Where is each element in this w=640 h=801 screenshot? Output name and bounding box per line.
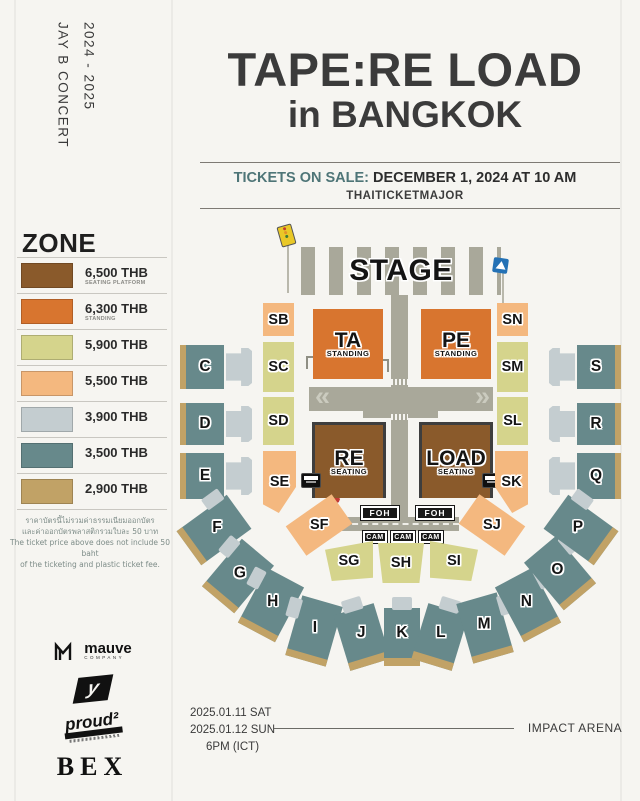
zone-re: RE SEATING xyxy=(312,422,386,498)
cross-aisle: « » xyxy=(309,387,493,411)
zone-s-inner xyxy=(549,348,575,386)
legend-row: 2,900 THB xyxy=(17,474,167,510)
legend-price: 3,900 THB xyxy=(85,409,148,424)
stage: STAGE xyxy=(301,247,501,295)
cam-box: CAM xyxy=(391,531,415,543)
zone-pe: PE STANDING xyxy=(421,309,491,379)
zone-ta: TA STANDING xyxy=(313,309,383,379)
zone-sl: SL xyxy=(497,397,528,445)
foh-box: FOH xyxy=(416,506,454,520)
mauve-logo-text: mauve xyxy=(84,642,132,655)
disclaimer-line: และค่าออกบัตรพลาสติกรวมใบละ 50 บาท xyxy=(10,526,170,537)
legend-swatch xyxy=(21,443,73,468)
sponsor-logos: mauve COMPANY y proud² BEX xyxy=(20,640,165,782)
poster-title-city: in BANGKOK xyxy=(185,94,625,136)
proud-logo: proud² xyxy=(19,705,166,748)
legend-swatch xyxy=(21,479,73,504)
zone-sk: SK xyxy=(495,451,528,513)
ticket-vendor: THAITICKETMAJOR xyxy=(185,190,625,202)
zone-se: SE xyxy=(263,451,296,513)
side-artist: JAY B CONCERT xyxy=(50,22,76,148)
legend-row: 6,300 THB STANDING xyxy=(17,294,167,330)
left-arrow-icon: « xyxy=(315,381,327,412)
road-dashes xyxy=(342,523,459,525)
legend-row: 3,500 THB xyxy=(17,438,167,474)
zone-j-inner xyxy=(341,596,364,614)
traffic-light-green xyxy=(285,235,289,239)
zone-q-inner xyxy=(549,457,575,495)
zone-d: D xyxy=(180,403,224,445)
legend-swatch xyxy=(21,335,73,360)
poster: 2024 - 2025 JAY B CONCERT TAPE:RE LOAD i… xyxy=(0,0,640,801)
price-disclaimer: ราคาบัตรนี้ไม่รวมค่าธรรมเนียมออกบัตร และ… xyxy=(10,515,170,570)
legend-row: 5,900 THB xyxy=(17,330,167,366)
zone-r-inner xyxy=(549,406,575,442)
zone-sb: SB xyxy=(263,303,294,336)
legend-price: 2,900 THB xyxy=(85,481,148,496)
zone-load-label: LOAD xyxy=(426,448,486,469)
zone-i: I xyxy=(285,595,342,666)
zone-c: C xyxy=(180,345,224,389)
zone-d-inner xyxy=(226,406,252,442)
zone-load-sub: SEATING xyxy=(438,467,474,476)
zone-s: S xyxy=(577,345,621,389)
platform-marker-icon xyxy=(301,473,321,488)
zone-ta-sub: STANDING xyxy=(327,349,370,358)
zone-legend: 6,500 THB SEATING PLATFORM 6,300 THB STA… xyxy=(17,257,167,510)
disclaimer-line: of the ticketing and plastic ticket fee. xyxy=(10,559,170,570)
zone-sd: SD xyxy=(263,397,294,445)
cam-box: CAM xyxy=(363,531,387,543)
zone-sc: SC xyxy=(263,342,294,392)
legend-swatch xyxy=(21,371,73,396)
legend-swatch xyxy=(21,263,73,288)
divider xyxy=(200,208,620,209)
mauve-logo-icon xyxy=(53,640,79,662)
foh-label: FOH xyxy=(370,508,391,518)
zone-sf: SF xyxy=(286,494,353,556)
zone-e-inner xyxy=(226,457,252,495)
zone-r: R xyxy=(577,403,621,445)
zone-si: SI xyxy=(430,541,478,581)
zone-sg: SG xyxy=(325,541,373,581)
zone-j: J xyxy=(333,603,390,671)
paper-crease xyxy=(171,0,173,801)
right-arrow-icon: » xyxy=(475,381,487,412)
cam-label: CAM xyxy=(422,534,439,541)
zebra-crossing-icon xyxy=(391,414,408,420)
zebra-crossing-icon xyxy=(391,379,408,385)
cam-label: CAM xyxy=(366,534,383,541)
legend-heading: ZONE xyxy=(22,228,96,259)
event-dates: 2025.01.11 SAT 2025.01.12 SUN 6PM (ICT) xyxy=(190,705,275,756)
sale-datetime: DECEMBER 1, 2024 AT 10 AM xyxy=(373,170,576,186)
seating-map: « » STAGE TA STANDING xyxy=(175,225,635,665)
paper-crease xyxy=(14,0,16,801)
bex-logo: BEX xyxy=(20,752,165,782)
foh-box: FOH xyxy=(361,506,399,520)
footer-line xyxy=(274,728,514,729)
zone-re-sub: SEATING xyxy=(331,467,367,476)
disclaimer-line: The ticket price above does not include … xyxy=(10,537,170,559)
divider xyxy=(200,162,620,163)
zone-ta-label: TA xyxy=(335,330,361,351)
legend-note: SEATING PLATFORM xyxy=(85,280,146,286)
legend-price: 3,500 THB xyxy=(85,445,148,460)
legend-row: 5,500 THB xyxy=(17,366,167,402)
sale-line: TICKETS ON SALE: DECEMBER 1, 2024 AT 10 … xyxy=(185,170,625,186)
pedestrian-crossing-sign-icon xyxy=(492,257,509,274)
zone-sn: SN xyxy=(497,303,528,336)
venue-name: IMPACT ARENA xyxy=(520,721,630,735)
zone-sh: SH xyxy=(378,543,424,583)
foh-label: FOH xyxy=(425,508,446,518)
disclaimer-line: ราคาบัตรนี้ไม่รวมค่าธรรมเนียมออกบัตร xyxy=(10,515,170,526)
show-time: 6PM (ICT) xyxy=(190,739,275,756)
date-1: 2025.01.11 SAT xyxy=(190,705,275,722)
crossing-triangle xyxy=(495,260,506,269)
zone-pe-sub: STANDING xyxy=(435,349,478,358)
stage-label: STAGE xyxy=(349,254,453,288)
mauve-logo: mauve COMPANY xyxy=(20,640,165,662)
zone-k-inner xyxy=(392,597,412,610)
legend-price: 5,500 THB xyxy=(85,373,148,388)
poster-title: TAPE:RE LOAD xyxy=(185,42,625,97)
legend-row: 3,900 THB xyxy=(17,402,167,438)
zone-pe-label: PE xyxy=(442,330,470,351)
traffic-light-sign-icon xyxy=(276,223,296,247)
side-years: 2024 - 2025 xyxy=(76,22,102,148)
legend-price: 6,300 THB xyxy=(85,301,148,316)
zone-sm: SM xyxy=(497,342,528,392)
legend-row: 6,500 THB SEATING PLATFORM xyxy=(17,258,167,294)
legend-swatch xyxy=(21,299,73,324)
y-logo-icon: y xyxy=(72,674,113,703)
side-header: 2024 - 2025 JAY B CONCERT xyxy=(50,22,101,148)
legend-price: 6,500 THB xyxy=(85,265,148,280)
zone-re-label: RE xyxy=(334,448,363,469)
date-2: 2025.01.12 SUN xyxy=(190,722,275,739)
zone-c-inner xyxy=(226,348,252,386)
legend-note: STANDING xyxy=(85,316,116,322)
legend-price: 5,900 THB xyxy=(85,337,148,352)
cam-label: CAM xyxy=(394,534,411,541)
legend-swatch xyxy=(21,407,73,432)
sale-label: TICKETS ON SALE: xyxy=(234,170,369,186)
